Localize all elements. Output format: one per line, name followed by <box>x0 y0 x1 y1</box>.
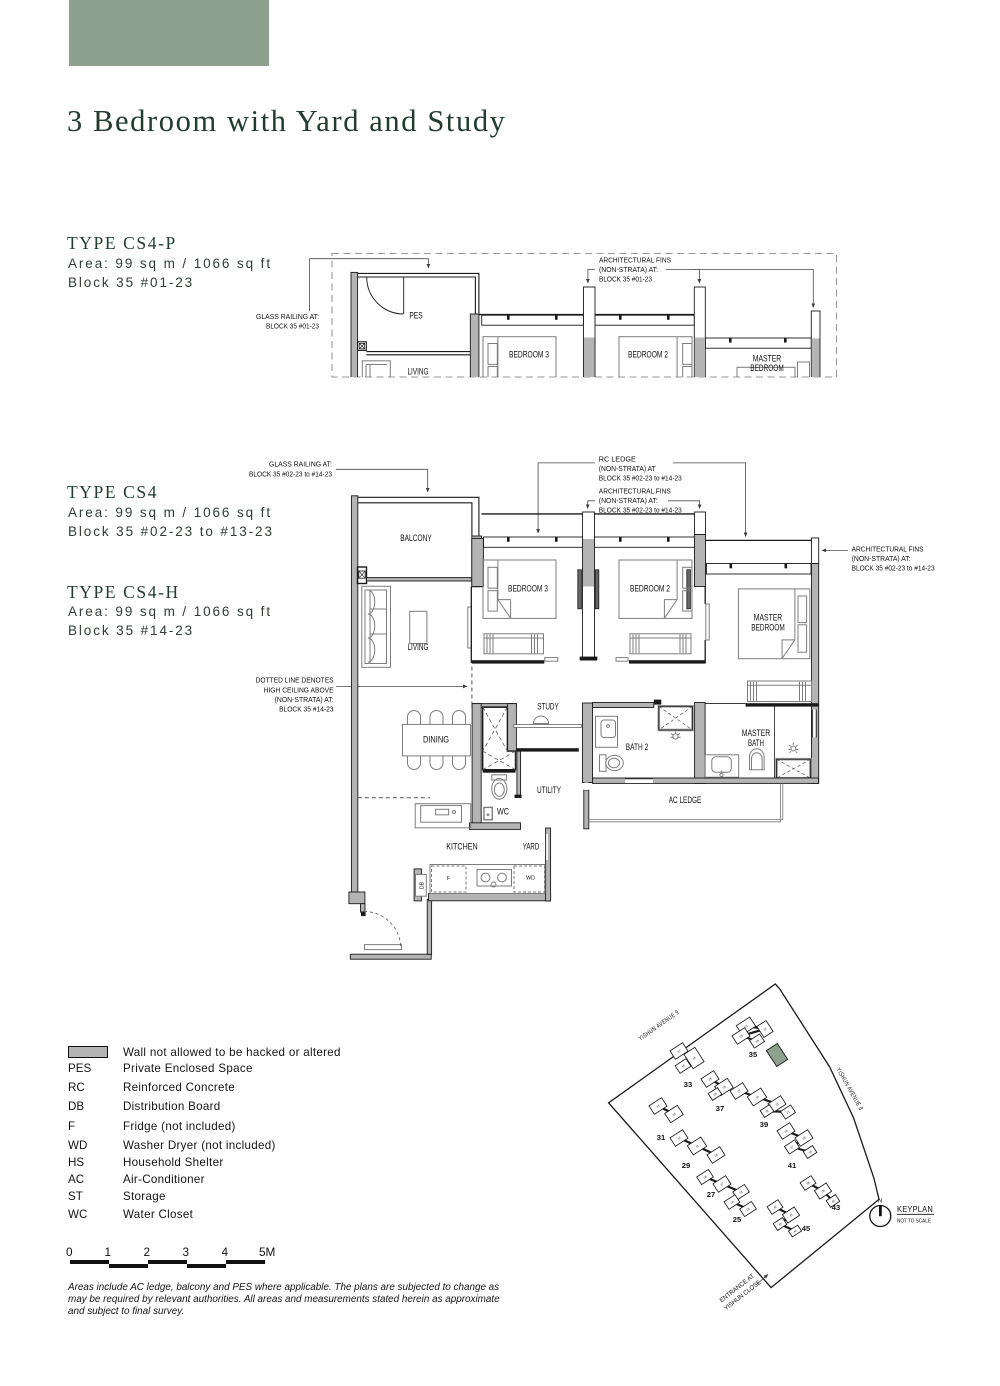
svg-text:BLOCK 35 #02-23 to #14-23: BLOCK 35 #02-23 to #14-23 <box>852 564 935 573</box>
svg-text:25: 25 <box>733 1215 742 1224</box>
svg-text:MASTER: MASTER <box>753 354 782 364</box>
svg-text:BLOCK 35 #01-23: BLOCK 35 #01-23 <box>599 275 652 284</box>
svg-text:DB: DB <box>420 881 426 889</box>
svg-text:YISHUN AVENUE 9: YISHUN AVENUE 9 <box>638 1009 681 1043</box>
svg-text:ARCHITECTURAL FINS: ARCHITECTURAL FINS <box>599 256 671 265</box>
svg-text:F: F <box>447 876 450 882</box>
svg-text:MASTER: MASTER <box>754 613 783 623</box>
svg-text:UTILITY: UTILITY <box>537 785 561 795</box>
svg-text:KEYPLAN: KEYPLAN <box>897 1204 933 1214</box>
svg-text:(NON-STRATA) AT:: (NON-STRATA) AT: <box>599 265 658 274</box>
svg-text:27: 27 <box>707 1190 715 1199</box>
svg-text:NOT TO SCALE: NOT TO SCALE <box>897 1219 931 1225</box>
svg-text:(NON-STRATA) AT:: (NON-STRATA) AT: <box>599 496 658 505</box>
svg-text:39: 39 <box>760 1120 768 1129</box>
svg-text:WC: WC <box>497 807 509 817</box>
svg-text:(NON-STRATA) AT: (NON-STRATA) AT <box>599 464 656 473</box>
svg-text:BEDROOM: BEDROOM <box>751 623 785 633</box>
svg-text:37: 37 <box>716 1104 724 1113</box>
svg-text:BLOCK 35 #02-23 to #14-23: BLOCK 35 #02-23 to #14-23 <box>599 474 682 483</box>
svg-text:29: 29 <box>682 1161 690 1170</box>
svg-text:BEDROOM 2: BEDROOM 2 <box>628 350 668 360</box>
svg-text:BLOCK 35 #01-23: BLOCK 35 #01-23 <box>266 322 319 331</box>
svg-text:43: 43 <box>832 1203 840 1212</box>
svg-text:BEDROOM 3: BEDROOM 3 <box>509 350 549 360</box>
svg-text:BEDROOM 2: BEDROOM 2 <box>630 584 670 594</box>
svg-text:AC LEDGE: AC LEDGE <box>669 795 702 805</box>
svg-text:45: 45 <box>802 1224 811 1233</box>
svg-text:N: N <box>878 1198 882 1205</box>
svg-text:(NON-STRATA) AT:: (NON-STRATA) AT: <box>275 695 334 704</box>
svg-text:(NON-STRATA) AT:: (NON-STRATA) AT: <box>852 554 911 563</box>
svg-text:BATH 2: BATH 2 <box>626 742 649 752</box>
svg-text:31: 31 <box>657 1133 666 1142</box>
svg-text:MASTER: MASTER <box>742 728 771 738</box>
svg-text:LIVING: LIVING <box>408 367 429 377</box>
svg-text:WD: WD <box>526 876 535 882</box>
svg-text:ARCHITECTURAL FINS: ARCHITECTURAL FINS <box>852 545 924 554</box>
svg-text:BLOCK 35 #02-23 to #14-23: BLOCK 35 #02-23 to #14-23 <box>599 506 682 515</box>
svg-text:ARCHITECTURAL FINS: ARCHITECTURAL FINS <box>599 487 671 496</box>
svg-text:KITCHEN: KITCHEN <box>446 842 478 852</box>
svg-text:GLASS RAILING AT:: GLASS RAILING AT: <box>269 460 332 469</box>
svg-text:DOTTED LINE DENOTES: DOTTED LINE DENOTES <box>256 676 334 685</box>
svg-text:BEDROOM: BEDROOM <box>750 363 784 373</box>
svg-text:YARD: YARD <box>523 842 540 852</box>
svg-text:BATH: BATH <box>748 738 764 748</box>
svg-text:33: 33 <box>684 1080 692 1089</box>
svg-text:DINING: DINING <box>423 735 449 745</box>
svg-text:HIGH CEILING ABOVE: HIGH CEILING ABOVE <box>264 685 334 694</box>
svg-text:GLASS RAILING AT:: GLASS RAILING AT: <box>256 312 319 321</box>
svg-text:BALCONY: BALCONY <box>400 533 432 543</box>
svg-text:41: 41 <box>788 1161 797 1170</box>
svg-text:LIVING: LIVING <box>408 642 429 652</box>
svg-text:PES: PES <box>409 311 422 321</box>
svg-text:STUDY: STUDY <box>537 702 559 712</box>
svg-text:BLOCK 35 #14-23: BLOCK 35 #14-23 <box>279 705 334 714</box>
svg-text:BEDROOM 3: BEDROOM 3 <box>508 584 548 594</box>
svg-text:YISHUN AVENUE 8: YISHUN AVENUE 8 <box>834 1067 864 1112</box>
svg-text:35: 35 <box>749 1050 758 1059</box>
svg-text:BLOCK 35 #02-23 to #14-23: BLOCK 35 #02-23 to #14-23 <box>249 470 332 479</box>
svg-text:RC LEDGE: RC LEDGE <box>599 455 636 464</box>
